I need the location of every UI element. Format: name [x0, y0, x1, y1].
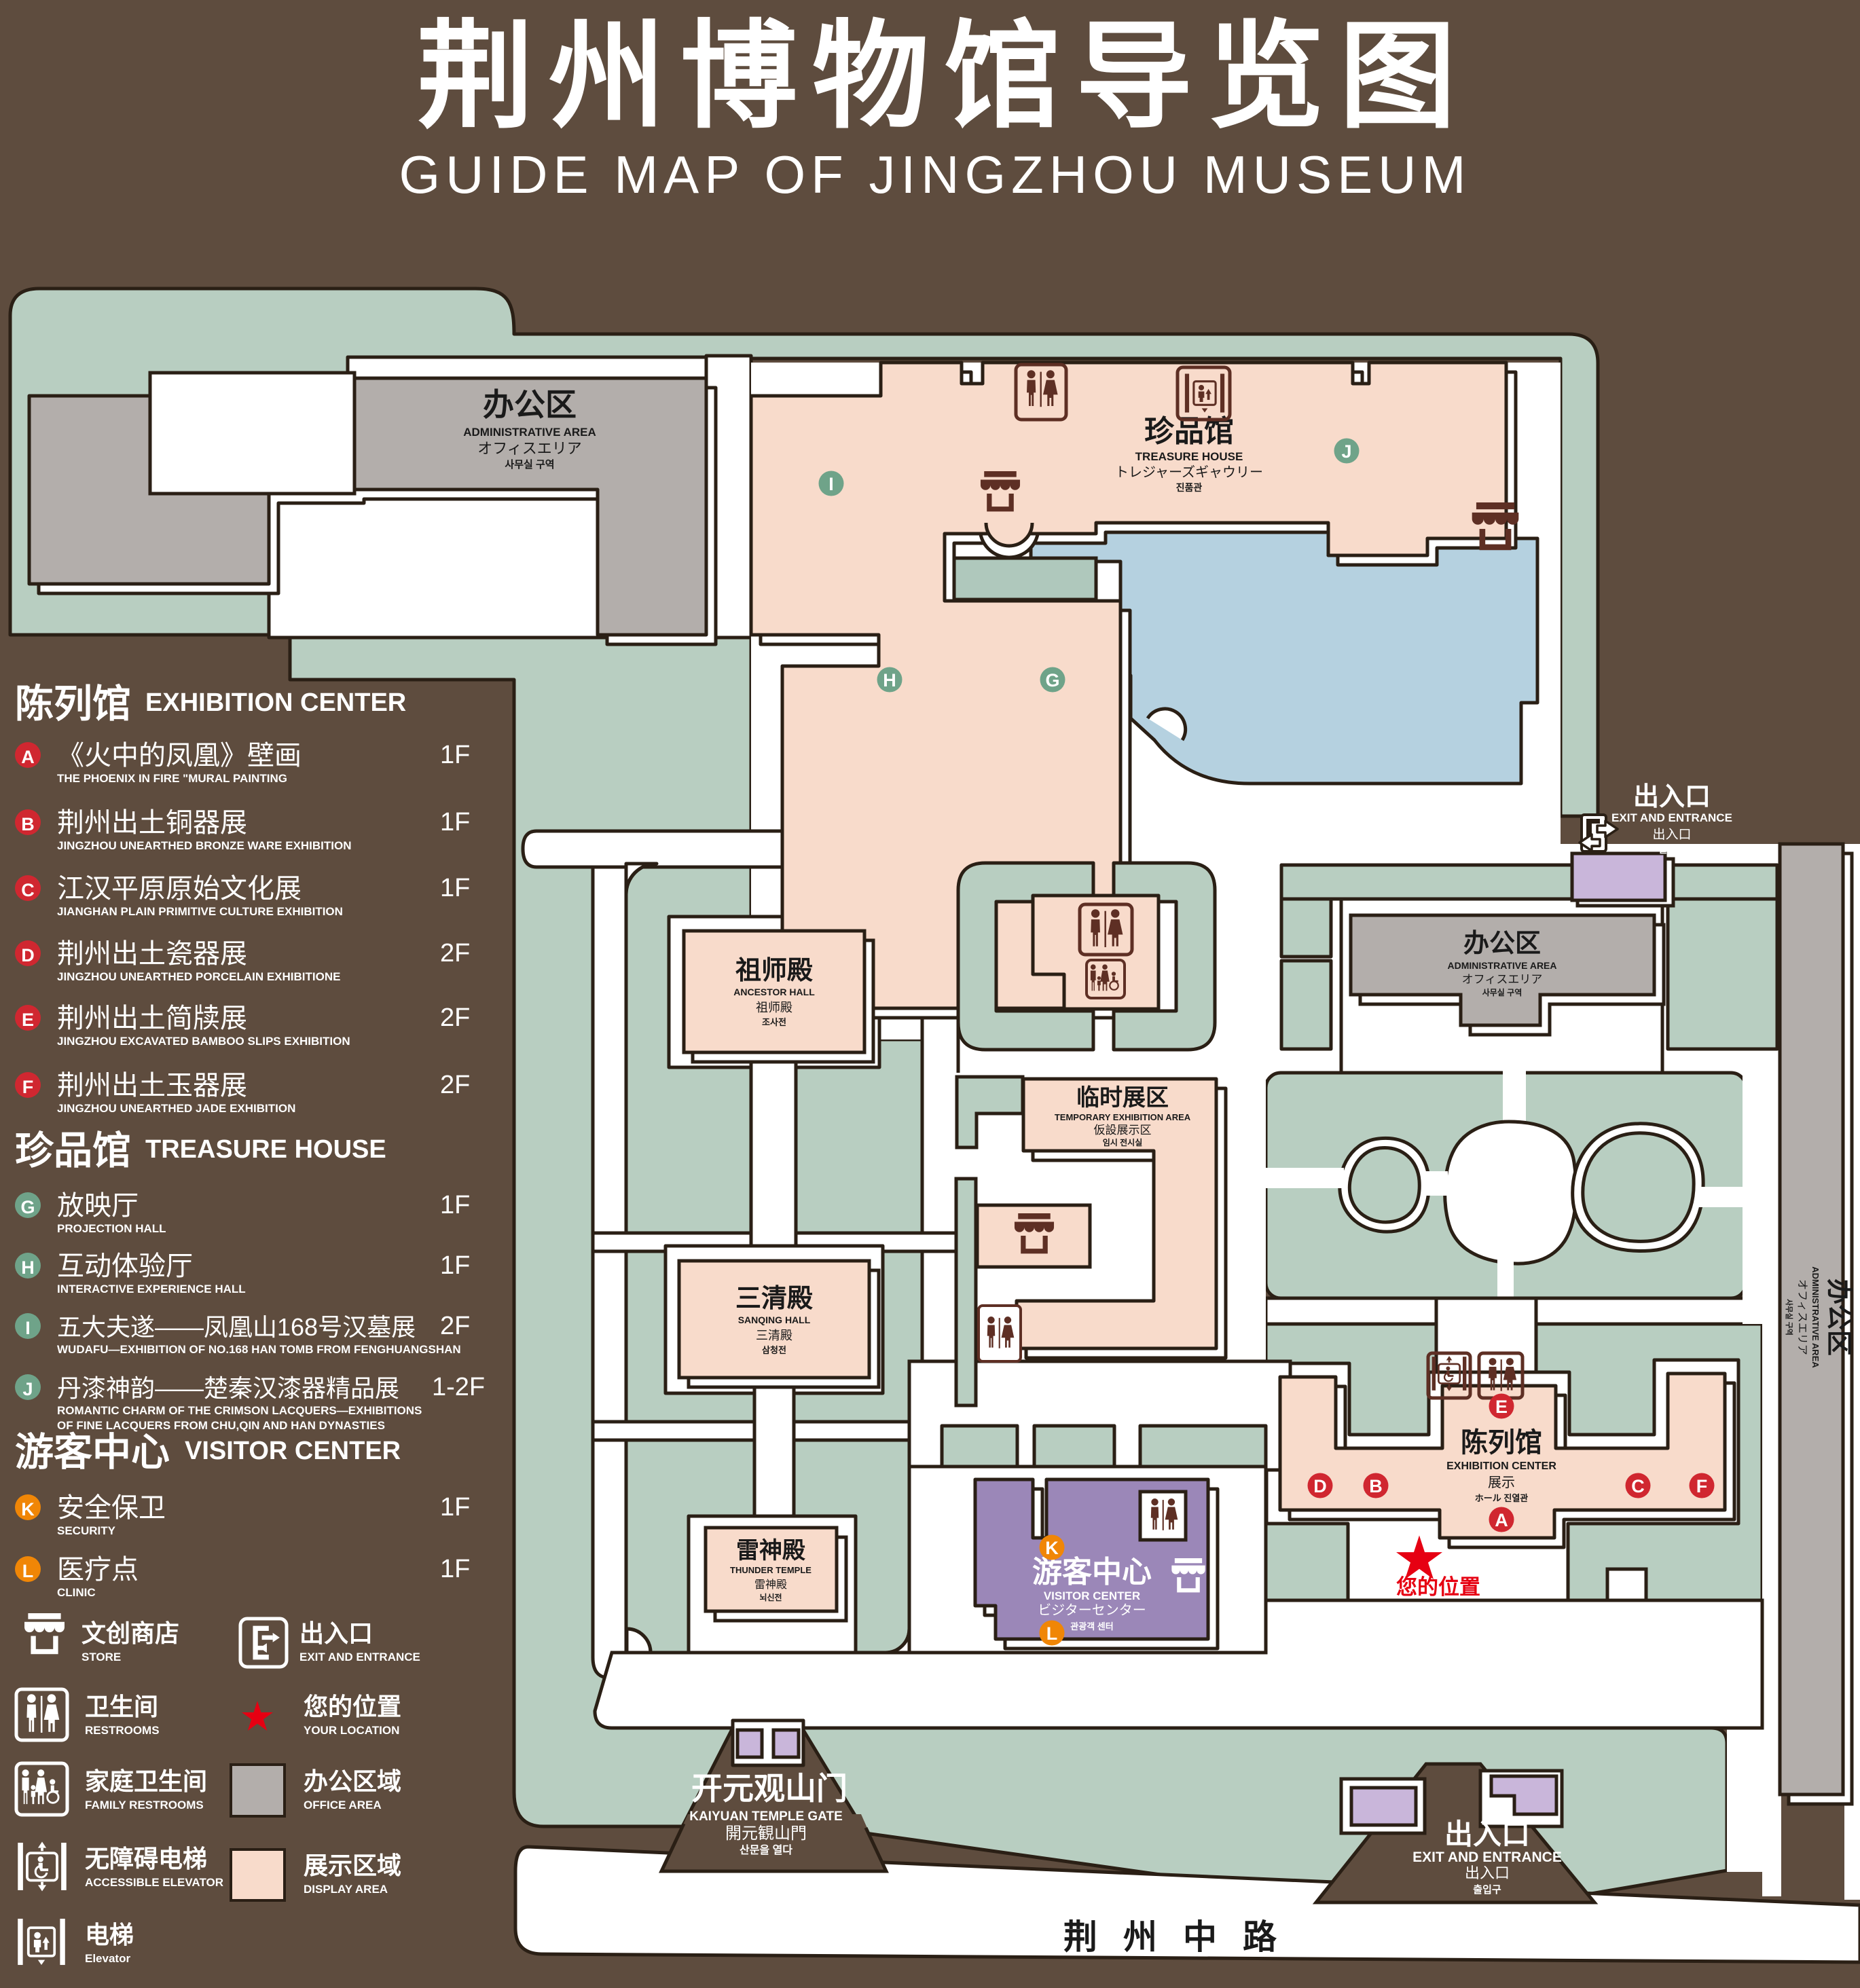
- svg-text:1F: 1F: [440, 741, 470, 769]
- svg-text:祖师殿: 祖师殿: [756, 1001, 792, 1014]
- svg-text:Elevator: Elevator: [85, 1952, 130, 1965]
- svg-text:임시 전시실: 임시 전시실: [1103, 1137, 1143, 1147]
- svg-text:荆州出土瓷器展: 荆州出土瓷器展: [57, 939, 247, 969]
- svg-text:1F: 1F: [440, 874, 470, 902]
- svg-text:1F: 1F: [440, 1191, 470, 1219]
- svg-text:EXIT AND ENTRANCE: EXIT AND ENTRANCE: [299, 1651, 420, 1663]
- svg-text:조사전: 조사전: [762, 1017, 786, 1027]
- svg-text:办公区: 办公区: [1824, 1278, 1853, 1356]
- svg-text:사무실 구역: 사무실 구역: [505, 459, 554, 471]
- svg-text:互动体验厅: 互动体验厅: [57, 1251, 193, 1281]
- svg-text:산문을 열다: 산문을 열다: [740, 1844, 792, 1856]
- svg-text:B: B: [1369, 1476, 1383, 1496]
- svg-text:관광객 센터: 관광객 센터: [1070, 1621, 1113, 1632]
- svg-text:F: F: [1696, 1476, 1708, 1496]
- svg-text:雷神殿: 雷神殿: [736, 1538, 805, 1564]
- svg-text:B: B: [21, 814, 35, 834]
- svg-text:您的位置: 您的位置: [1396, 1575, 1480, 1599]
- svg-text:C: C: [21, 880, 35, 900]
- svg-text:GUIDE MAP OF JINGZHOU MUSEUM: GUIDE MAP OF JINGZHOU MUSEUM: [399, 145, 1472, 204]
- svg-text:I: I: [25, 1318, 31, 1338]
- svg-text:JINGZHOU UNEARTHED PORCELAIN E: JINGZHOU UNEARTHED PORCELAIN EXHIBITIONE: [57, 970, 340, 983]
- svg-text:진품관: 진품관: [1176, 482, 1203, 493]
- svg-text:A: A: [21, 747, 35, 767]
- svg-text:KAIYUAN TEMPLE GATE: KAIYUAN TEMPLE GATE: [689, 1809, 843, 1824]
- svg-text:THUNDER TEMPLE: THUNDER TEMPLE: [730, 1565, 812, 1575]
- svg-text:VISITOR CENTER: VISITOR CENTER: [1044, 1589, 1140, 1602]
- svg-text:荆州出土简牍展: 荆州出土简牍展: [57, 1004, 247, 1033]
- svg-text:医疗点: 医疗点: [57, 1555, 139, 1585]
- svg-text:您的位置: 您的位置: [304, 1693, 401, 1720]
- svg-text:オフィスエリア: オフィスエリア: [1462, 973, 1543, 986]
- svg-text:1F: 1F: [440, 808, 470, 836]
- svg-text:J: J: [22, 1379, 33, 1399]
- svg-text:ANCESTOR HALL: ANCESTOR HALL: [733, 987, 815, 997]
- svg-text:《火中的凤凰》壁画: 《火中的凤凰》壁画: [57, 741, 302, 771]
- svg-text:ACCESSIBLE ELEVATOR: ACCESSIBLE ELEVATOR: [85, 1876, 223, 1889]
- svg-text:2F: 2F: [440, 1071, 470, 1099]
- svg-text:祖师殿: 祖师殿: [735, 957, 813, 985]
- svg-text:J: J: [1341, 441, 1351, 462]
- svg-text:出入口: 出入口: [1465, 1864, 1510, 1881]
- svg-text:丹漆神韵——楚秦汉漆器精品展: 丹漆神韵——楚秦汉漆器精品展: [57, 1374, 399, 1402]
- svg-text:出入口: 出入口: [299, 1619, 373, 1647]
- svg-text:办公区域: 办公区域: [304, 1767, 401, 1795]
- svg-text:トレジャーズギャウリー: トレジャーズギャウリー: [1115, 464, 1263, 480]
- svg-text:D: D: [21, 945, 35, 965]
- svg-text:JIANGHAN PLAIN PRIMITIVE CULTU: JIANGHAN PLAIN PRIMITIVE CULTURE EXHIBIT…: [57, 905, 343, 918]
- svg-text:출입구: 출입구: [1473, 1884, 1501, 1896]
- svg-text:L: L: [22, 1561, 34, 1581]
- svg-text:三清殿: 三清殿: [735, 1285, 813, 1313]
- svg-text:展示: 展示: [1488, 1475, 1515, 1490]
- svg-text:1F: 1F: [440, 1493, 470, 1522]
- svg-text:G: G: [1045, 670, 1059, 691]
- svg-text:JINGZHOU UNEARTHED JADE EXHIBI: JINGZHOU UNEARTHED JADE EXHIBITION: [57, 1102, 295, 1115]
- svg-text:办公区: 办公区: [1463, 929, 1541, 958]
- svg-text:临时展区: 临时展区: [1076, 1085, 1169, 1111]
- svg-text:THE PHOENIX IN FIRE "MURAL PAI: THE PHOENIX IN FIRE "MURAL PAINTING: [57, 772, 287, 785]
- svg-text:TREASURE HOUSE: TREASURE HOUSE: [145, 1135, 386, 1164]
- svg-text:D: D: [1313, 1476, 1327, 1496]
- svg-text:开元观山门: 开元观山门: [691, 1771, 847, 1806]
- svg-text:2F: 2F: [440, 939, 470, 968]
- svg-text:사무실 구역: 사무실 구역: [1482, 987, 1522, 997]
- svg-text:珍品馆: 珍品馆: [15, 1129, 131, 1173]
- svg-text:展示区域: 展示区域: [304, 1852, 401, 1879]
- svg-text:PROJECTION HALL: PROJECTION HALL: [57, 1222, 166, 1235]
- svg-text:仮設展示区: 仮設展示区: [1094, 1124, 1152, 1137]
- svg-text:출입구: 출입구: [1659, 844, 1685, 855]
- svg-text:STORE: STORE: [81, 1651, 121, 1663]
- svg-text:ホール 진열관: ホール 진열관: [1475, 1493, 1529, 1503]
- svg-text:陈列馆: 陈列馆: [1461, 1428, 1542, 1458]
- svg-text:ADMINISTRATIVE AREA: ADMINISTRATIVE AREA: [1448, 960, 1557, 971]
- svg-text:ADMINISTRATIVE AREA: ADMINISTRATIVE AREA: [1810, 1266, 1821, 1368]
- svg-text:E: E: [22, 1010, 34, 1030]
- svg-text:雷神殿: 雷神殿: [754, 1579, 787, 1591]
- svg-text:1F: 1F: [440, 1251, 470, 1280]
- svg-text:F: F: [22, 1077, 34, 1097]
- svg-text:CLINIC: CLINIC: [57, 1586, 96, 1599]
- svg-text:家庭卫生间: 家庭卫生间: [85, 1767, 207, 1795]
- svg-text:EXHIBITION CENTER: EXHIBITION CENTER: [145, 688, 406, 717]
- svg-text:A: A: [1495, 1510, 1508, 1530]
- svg-text:DISPLAY AREA: DISPLAY AREA: [304, 1883, 388, 1896]
- svg-text:VISITOR CENTER: VISITOR CENTER: [185, 1437, 401, 1465]
- svg-text:EXHIBITION CENTER: EXHIBITION CENTER: [1446, 1460, 1556, 1472]
- svg-text:ADMINISTRATIVE AREA: ADMINISTRATIVE AREA: [463, 426, 596, 439]
- svg-text:荆州出土铜器展: 荆州出土铜器展: [57, 808, 247, 838]
- svg-text:JINGZHOU UNEARTHED BRONZE WARE: JINGZHOU UNEARTHED BRONZE WARE EXHIBITIO…: [57, 839, 352, 852]
- svg-text:FAMILY RESTROOMS: FAMILY RESTROOMS: [85, 1799, 204, 1811]
- svg-text:文创商店: 文创商店: [81, 1619, 179, 1647]
- svg-text:ROMANTIC CHARM OF THE CRIMSON: ROMANTIC CHARM OF THE CRIMSON LACQUERS—E…: [57, 1404, 422, 1417]
- svg-text:K: K: [21, 1499, 35, 1520]
- svg-text:荆州博物馆导览图: 荆州博物馆导览图: [417, 12, 1471, 142]
- svg-text:游客中心: 游客中心: [1032, 1556, 1152, 1589]
- svg-text:三清殿: 三清殿: [756, 1329, 792, 1342]
- svg-text:EXIT AND ENTRANCE: EXIT AND ENTRANCE: [1611, 811, 1732, 824]
- svg-text:SECURITY: SECURITY: [57, 1524, 116, 1537]
- svg-text:EXIT AND ENTRANCE: EXIT AND ENTRANCE: [1412, 1849, 1562, 1865]
- svg-text:江汉平原原始文化展: 江汉平原原始文化展: [57, 874, 302, 904]
- svg-text:荆州出土玉器展: 荆州出土玉器展: [57, 1071, 247, 1101]
- svg-text:開元観山門: 開元観山門: [725, 1824, 807, 1843]
- svg-text:OFFICE AREA: OFFICE AREA: [304, 1799, 382, 1811]
- svg-text:办公区: 办公区: [483, 387, 577, 422]
- svg-text:K: K: [1045, 1538, 1059, 1558]
- svg-text:SANQING HALL: SANQING HALL: [738, 1314, 811, 1325]
- svg-text:ビジターセンター: ビジターセンター: [1038, 1602, 1146, 1618]
- svg-text:H: H: [883, 670, 896, 691]
- svg-text:INTERACTIVE EXPERIENCE HALL: INTERACTIVE EXPERIENCE HALL: [57, 1283, 246, 1295]
- svg-text:安全保卫: 安全保卫: [57, 1493, 166, 1523]
- svg-text:TREASURE HOUSE: TREASURE HOUSE: [1135, 450, 1243, 463]
- svg-text:出入口: 出入口: [1444, 1818, 1530, 1850]
- svg-text:JINGZHOU EXCAVATED BAMBOO SLIP: JINGZHOU EXCAVATED BAMBOO SLIPS EXHIBITI…: [57, 1035, 350, 1048]
- svg-text:YOUR LOCATION: YOUR LOCATION: [304, 1724, 399, 1737]
- svg-text:陈列馆: 陈列馆: [15, 682, 131, 726]
- svg-text:L: L: [1046, 1623, 1058, 1644]
- svg-text:2F: 2F: [440, 1312, 470, 1340]
- svg-text:뇌신전: 뇌신전: [759, 1592, 782, 1602]
- svg-text:삼청전: 삼청전: [762, 1345, 786, 1355]
- svg-text:G: G: [20, 1197, 35, 1217]
- svg-text:사무실 구역: 사무실 구역: [1785, 1299, 1794, 1336]
- svg-text:I: I: [828, 474, 834, 494]
- svg-text:电梯: 电梯: [85, 1921, 134, 1949]
- svg-text:C: C: [1631, 1476, 1645, 1496]
- svg-text:无障碍电梯: 无障碍电梯: [85, 1845, 207, 1873]
- svg-text:H: H: [21, 1257, 35, 1278]
- svg-text:荆州中路: 荆州中路: [1063, 1918, 1302, 1956]
- svg-text:出入口: 出入口: [1652, 827, 1691, 842]
- svg-text:E: E: [1495, 1397, 1508, 1417]
- svg-text:WUDAFU—EXHIBITION OF NO.168 HA: WUDAFU—EXHIBITION OF NO.168 HAN TOMB FRO…: [57, 1343, 461, 1356]
- svg-text:出入口: 出入口: [1633, 783, 1711, 811]
- svg-text:オフィスエリア: オフィスエリア: [477, 440, 582, 457]
- svg-text:2F: 2F: [440, 1004, 470, 1032]
- svg-text:1-2F: 1-2F: [432, 1373, 485, 1401]
- svg-text:卫生间: 卫生间: [85, 1693, 158, 1720]
- svg-text:五大夫遂——凤凰山168号汉墓展: 五大夫遂——凤凰山168号汉墓展: [57, 1313, 416, 1341]
- svg-text:放映厅: 放映厅: [57, 1191, 139, 1221]
- svg-text:1F: 1F: [440, 1555, 470, 1583]
- svg-text:オフィスエリア: オフィスエリア: [1796, 1279, 1808, 1355]
- svg-text:游客中心: 游客中心: [15, 1431, 170, 1474]
- svg-text:TEMPORARY EXHIBITION AREA: TEMPORARY EXHIBITION AREA: [1055, 1112, 1191, 1122]
- svg-text:RESTROOMS: RESTROOMS: [85, 1724, 160, 1737]
